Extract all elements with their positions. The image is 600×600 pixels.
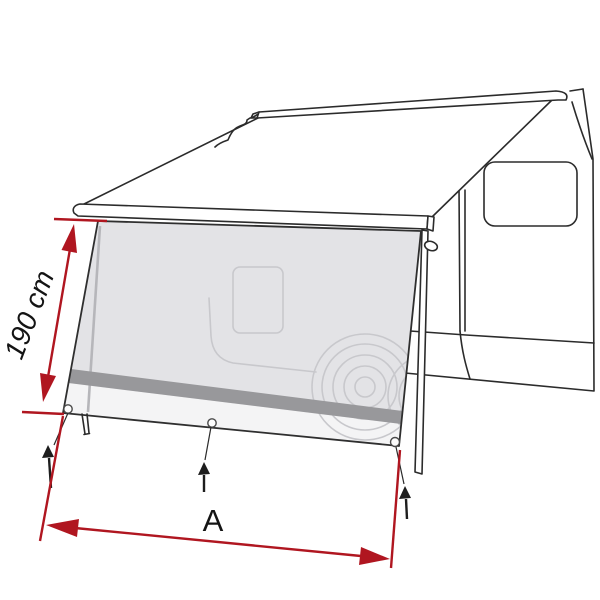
- peg-right: [406, 499, 407, 519]
- vehicle-window: [484, 162, 577, 226]
- lead-rail-end-cap: [427, 216, 434, 231]
- grommet-left: [64, 405, 72, 413]
- peg-center-arrowhead: [198, 462, 210, 475]
- vehicle-wheel-arch-line: [460, 331, 470, 379]
- height-dimension-line: [48, 249, 70, 377]
- vehicle-body-crease: [410, 331, 594, 343]
- height-arrowhead-top: [62, 224, 78, 253]
- height-dimension-label: 190 cm: [0, 266, 60, 363]
- width-arrowhead-right: [359, 547, 390, 565]
- height-extension-bottom: [22, 412, 64, 414]
- awning-diagram: 190 cm A: [0, 0, 600, 600]
- support-leg-left-foot: [82, 414, 90, 435]
- height-extension-top: [54, 219, 107, 221]
- support-leg-left-stub: [82, 414, 90, 435]
- grommet-center: [208, 419, 216, 427]
- width-arrowhead-left: [46, 519, 79, 537]
- peg-right-arrowhead: [399, 486, 411, 499]
- diagram-canvas: 190 cm A: [0, 0, 600, 600]
- vehicle-door-seam: [459, 187, 460, 331]
- width-dimension-label: A: [203, 503, 224, 538]
- front-panel: [63, 221, 470, 447]
- awning-fabric: [80, 100, 552, 217]
- width-extension-right: [391, 450, 400, 568]
- grommet-right: [391, 438, 400, 447]
- height-arrowhead-bottom: [40, 373, 56, 402]
- peg-left-arrowhead: [42, 445, 54, 458]
- width-extension-left: [40, 416, 63, 541]
- leader-line-center: [205, 427, 211, 460]
- vehicle-roof-edge: [570, 89, 583, 91]
